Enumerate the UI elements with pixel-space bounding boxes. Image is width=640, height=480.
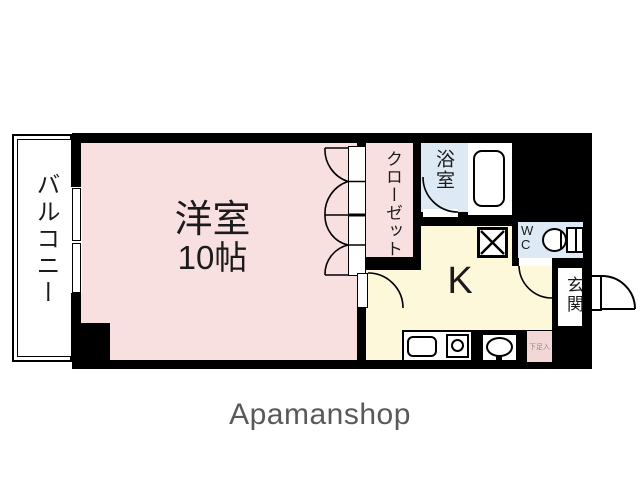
balcony-window-pane [72,243,81,293]
balcony-window-pane [72,188,81,241]
basin-faucet [496,355,502,360]
bath-door-opening [423,209,458,217]
toilet-seat-line [560,231,562,249]
wc-label-w: W [521,224,533,238]
watermark: Apamanshop [0,398,640,432]
bath-label: 浴室 [430,149,457,191]
shoe-cupboard-label: 下足入 [529,342,550,352]
floorplan-canvas: 下足入 バルコニー 洋室 10帖 クローゼット 浴室 K W C 玄関 Apam… [0,0,640,480]
entrance-label: 玄関 [561,276,586,314]
wall-pillar [81,323,110,360]
kitchen-door-leaf [357,273,368,308]
toilet-tank-line [575,228,577,252]
wc-label: W C [521,224,533,252]
western-room-size: 10帖 [130,241,295,274]
shoe-cupboard: 下足入 [527,331,552,362]
kitchen-floor-sliver [512,266,552,271]
western-room-label: 洋室 [130,201,295,239]
entrance-door-arc [602,276,635,309]
kitchen-label: K [440,260,480,303]
western-room-label-block: 洋室 10帖 [130,201,295,274]
stove-burner-icon [451,339,464,352]
closet-folding-door [348,146,366,276]
washing-machine-space [477,227,508,258]
balcony-label: バルコニー [28,172,63,307]
entrance-door-leaf [590,275,602,311]
toilet-icon [542,228,567,252]
wc-door-opening [519,258,552,266]
kitchen-sink-icon [407,336,437,357]
bathtub-icon [473,150,505,207]
wc-label-c: C [521,238,533,252]
wash-basin-icon [486,337,513,357]
closet-label: クローゼット [380,150,405,258]
